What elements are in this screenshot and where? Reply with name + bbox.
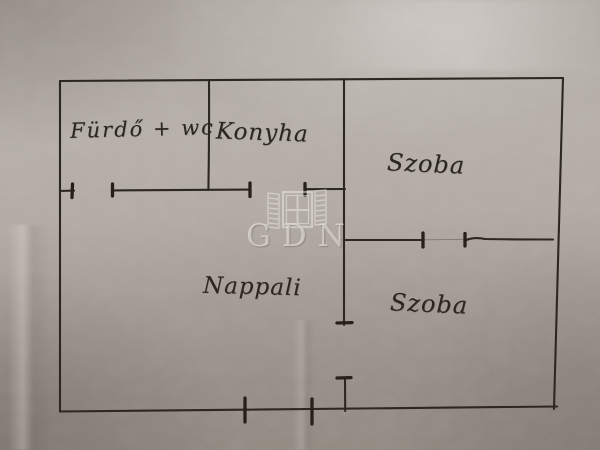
wall-furdo-konyha-bottom [112,190,250,191]
room-label-szoba-top: Szoba [386,148,465,179]
room-label-nappali: Nappali [203,273,302,302]
watermark-text: GDN [246,218,356,254]
outer-wall-top [60,78,563,81]
wall-szoba-divider-right [465,238,553,240]
floor-plan-photo: GDN Fürdő + wc Konyha Szoba Nappali Szob… [0,0,600,450]
door-tick-furdo-left [72,184,73,198]
outer-wall-right [554,78,563,409]
outer-wall-bottom [60,407,557,412]
room-label-furdo-wc: Fürdő + wc [70,115,215,143]
room-label-szoba-bottom: Szoba [389,288,468,319]
room-label-konyha: Konyha [216,118,310,147]
